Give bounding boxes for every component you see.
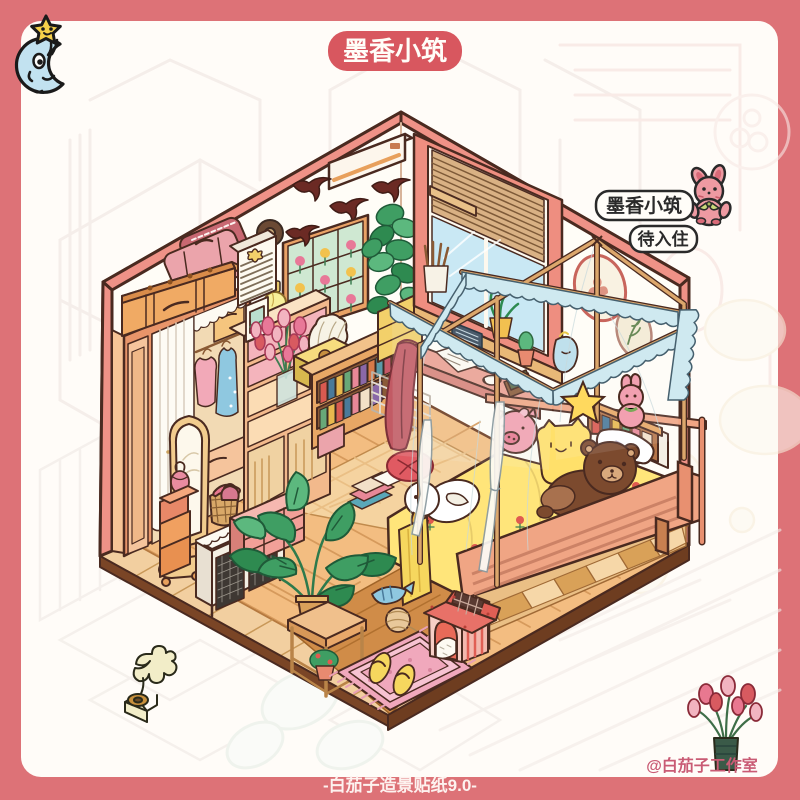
svg-text:墨香小筑: 墨香小筑: [606, 194, 682, 217]
svg-text:-白茄子造景贴纸9.0-: -白茄子造景贴纸9.0-: [323, 775, 477, 795]
svg-text:待入住: 待入住: [638, 229, 689, 249]
svg-text:@白茄子工作室: @白茄子工作室: [646, 756, 758, 775]
svg-text:墨香小筑: 墨香小筑: [343, 36, 447, 66]
